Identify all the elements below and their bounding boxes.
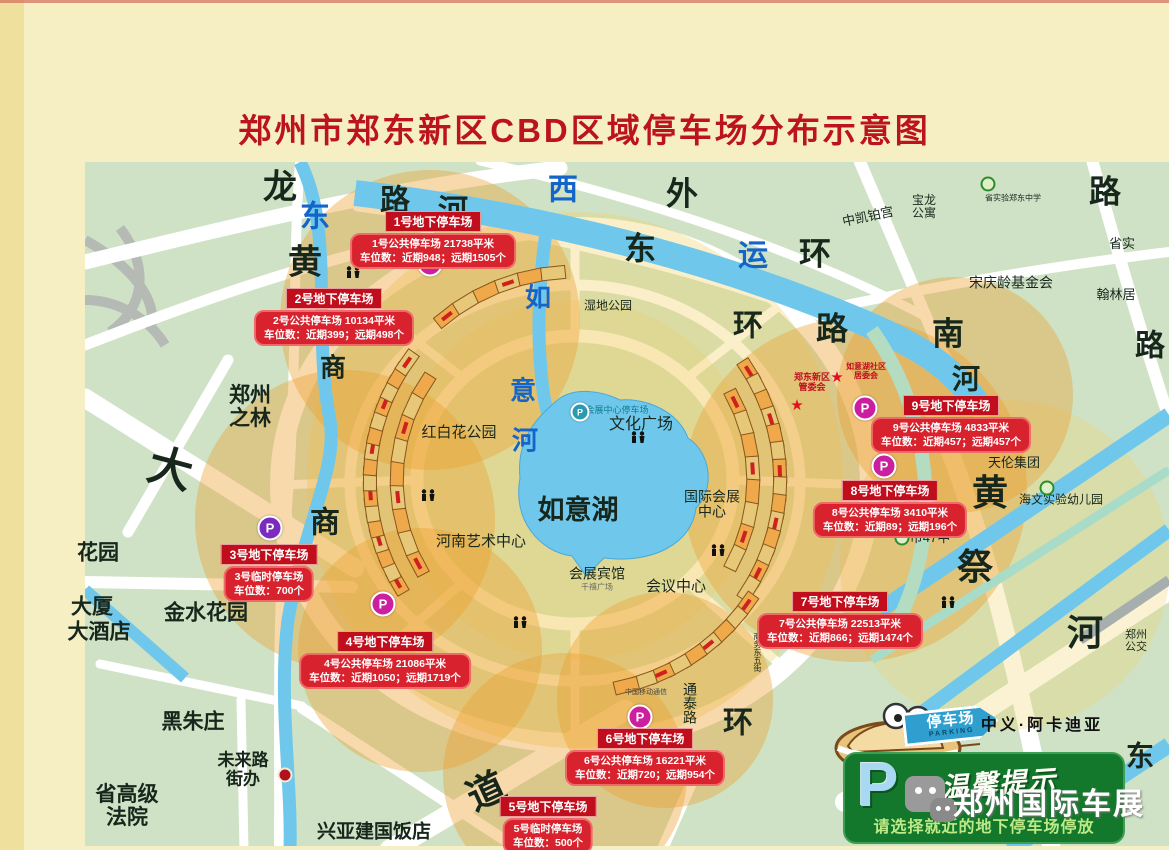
parking-p-glyph: P bbox=[857, 750, 898, 821]
scanned-parking-map-page: 郑州市郑东新区CBD区域停车场分布示意图 bbox=[0, 0, 1169, 850]
footer-layer: 停车场 PARKING 中义·阿卡迪亚 P 温馨提示 请选择就近的地下停车场停放… bbox=[0, 0, 1169, 850]
watermark-text: 郑州国际车展 bbox=[953, 779, 1145, 823]
neighborhood-label: 中义·阿卡迪亚 bbox=[981, 711, 1103, 735]
